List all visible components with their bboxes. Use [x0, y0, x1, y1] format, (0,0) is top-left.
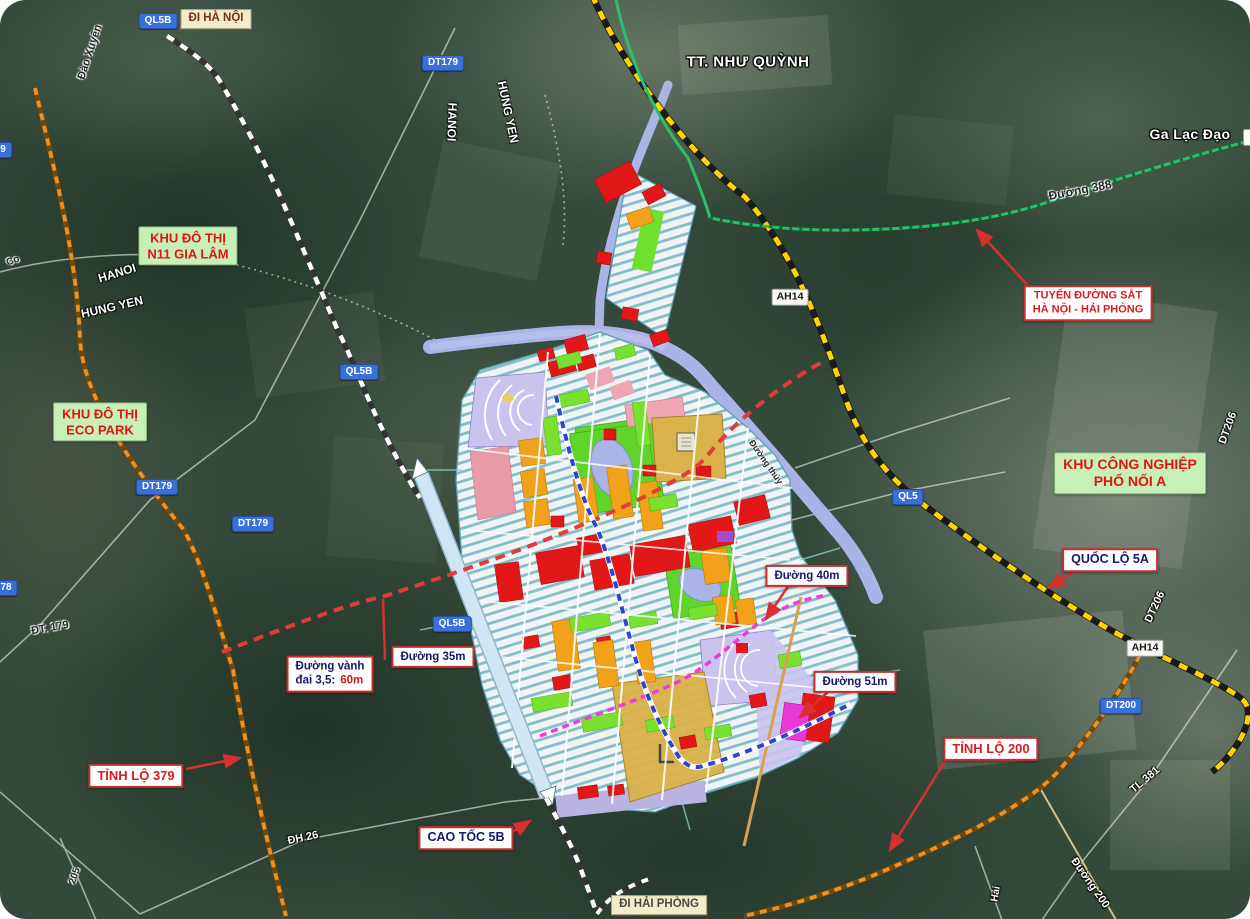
callout-duong-40m: Đường 40m — [765, 565, 848, 587]
road-label-hanoi: HANOI — [444, 102, 459, 141]
map-canvas[interactable]: QL5BDT179QL5BQL5BDT179DT179789QL5DT200AH… — [0, 0, 1250, 919]
place-label-tt-nhu-quynh: TT. NHƯ QUỲNH — [687, 54, 810, 71]
road-label-dh-26: ĐH 26 — [286, 829, 319, 847]
area-label-khu-do-thi-n11-gia-lam: KHU ĐÔ THỊN11 GIA LÂM — [138, 226, 237, 265]
callout-tinh-lo-200: TỈNH LỘ 200 — [943, 737, 1038, 761]
callout-tuyen-duong-sat-ha-noi-hai-phong: TUYẾN ĐƯỜNG SẮTHÀ NỘI - HẢI PHÒNG — [1024, 285, 1153, 321]
road-label-duong-thuy: Đường thủy — [747, 438, 785, 486]
road-label-tl-381: TL 381 — [1128, 764, 1162, 795]
direction-badge-di-hai-phong: ĐI HẢI PHÒNG — [611, 895, 707, 915]
road-label-205: 205 — [67, 866, 83, 885]
direction-badge-di-ha-noi: ĐI HÀ NỘI — [181, 9, 252, 29]
callout-text: Đường 51m — [822, 676, 887, 688]
road-label-dt206: DT206 — [1143, 589, 1168, 624]
route-shield-ql5: QL5 — [892, 489, 923, 505]
road-label-dao-xuyen: Đào Xuyên — [76, 23, 105, 81]
callout-line: TỈNH LỘ 379 — [97, 768, 174, 784]
callout-line: TỈNH LỘ 200 — [952, 741, 1029, 757]
callout-text: TUYẾN ĐƯỜNG SẮT — [1034, 289, 1142, 301]
callout-line: CAO TỐC 5B — [427, 830, 504, 846]
callout-line: Đường 35m — [400, 650, 465, 664]
partial-route-badge — [1243, 129, 1250, 146]
callout-duong-51m: Đường 51m — [813, 671, 896, 693]
callout-duong-35m: Đường 35m — [391, 646, 474, 668]
area-label-khu-do-thi-eco-park: KHU ĐÔ THỊECO PARK — [53, 402, 147, 441]
area-label-line: KHU ĐÔ THỊ — [147, 230, 228, 246]
route-shield-dt179: DT179 — [232, 516, 274, 532]
callout-tinh-lo-379: TỈNH LỘ 379 — [88, 764, 183, 788]
area-label-khu-cong-nghiep-pho-noi-a: KHU CÔNG NGHIỆPPHỐ NỐI A — [1054, 452, 1206, 494]
callout-text: QUỐC LỘ 5A — [1071, 552, 1149, 566]
callout-line: Đường 40m — [774, 569, 839, 583]
callout-line: TUYẾN ĐƯỜNG SẮT — [1033, 289, 1144, 303]
route-shield-ah14: AH14 — [772, 289, 809, 306]
road-label-dt206: DT206 — [1217, 410, 1240, 445]
map-labels: QL5BDT179QL5BQL5BDT179DT179789QL5DT200AH… — [0, 0, 1250, 919]
callout-cao-toc-5b: CAO TỐC 5B — [418, 826, 513, 850]
callout-highlight: 60m — [340, 675, 363, 687]
route-shield-ql5b: QL5B — [433, 616, 472, 632]
callout-line: Đường 51m — [822, 675, 887, 689]
callout-text: TỈNH LỘ 379 — [97, 768, 174, 783]
area-label-line: ECO PARK — [62, 422, 138, 438]
callout-text: đai 3,5: — [296, 675, 336, 687]
callout-text: Đường vành — [296, 661, 365, 673]
callout-duong-vanh-dai-3-5: Đường vànhđai 3,5:60m — [287, 656, 374, 693]
area-label-line: KHU CÔNG NGHIỆP — [1063, 456, 1197, 473]
callout-line: QUỐC LỘ 5A — [1071, 552, 1149, 568]
route-shield-9: 9 — [0, 142, 12, 158]
road-label-hanoi: HANOI — [96, 261, 137, 286]
area-label-line: KHU ĐÔ THỊ — [62, 406, 138, 422]
road-label-hung-yen: HUNG YEN — [495, 80, 522, 145]
callout-text: Đường 40m — [774, 570, 839, 582]
area-label-line: PHỐ NỐI A — [1063, 473, 1197, 490]
road-label-hung-yen: HUNG YEN — [80, 293, 145, 321]
route-shield-dt200: DT200 — [1100, 698, 1142, 714]
area-label-line: N11 GIA LÂM — [147, 246, 228, 262]
route-shield-ql5b: QL5B — [340, 364, 379, 380]
callout-text: CAO TỐC 5B — [427, 830, 504, 844]
callout-line: HÀ NỘI - HẢI PHÒNG — [1033, 303, 1144, 317]
callout-text: HÀ NỘI - HẢI PHÒNG — [1033, 303, 1144, 315]
road-label-duong-200: Đường 200 — [1068, 856, 1111, 911]
road-label-hai: Hải — [989, 885, 1003, 902]
callout-quoc-lo-5a: QUỐC LỘ 5A — [1062, 548, 1158, 572]
place-label-ga-lac-dao: Ga Lạc Đạo — [1149, 126, 1230, 142]
road-label-dt-179: ĐT. 179 — [30, 619, 69, 637]
callout-line: Đường vành — [296, 660, 365, 674]
callout-text: Đường 35m — [400, 651, 465, 663]
road-label-duong-388: Đường 388 — [1047, 177, 1112, 203]
route-shield-ql5b: QL5B — [139, 13, 178, 29]
route-shield-dt179: DT179 — [136, 479, 178, 495]
road-label-co: Co — [5, 254, 21, 269]
page: QL5BDT179QL5BQL5BDT179DT179789QL5DT200AH… — [0, 0, 1250, 919]
callout-text: TỈNH LỘ 200 — [952, 741, 1029, 756]
route-shield-dt179: DT179 — [422, 55, 464, 71]
route-shield-78: 78 — [0, 580, 18, 596]
route-shield-ah14: AH14 — [1127, 640, 1164, 657]
callout-line: đai 3,5:60m — [296, 674, 365, 688]
